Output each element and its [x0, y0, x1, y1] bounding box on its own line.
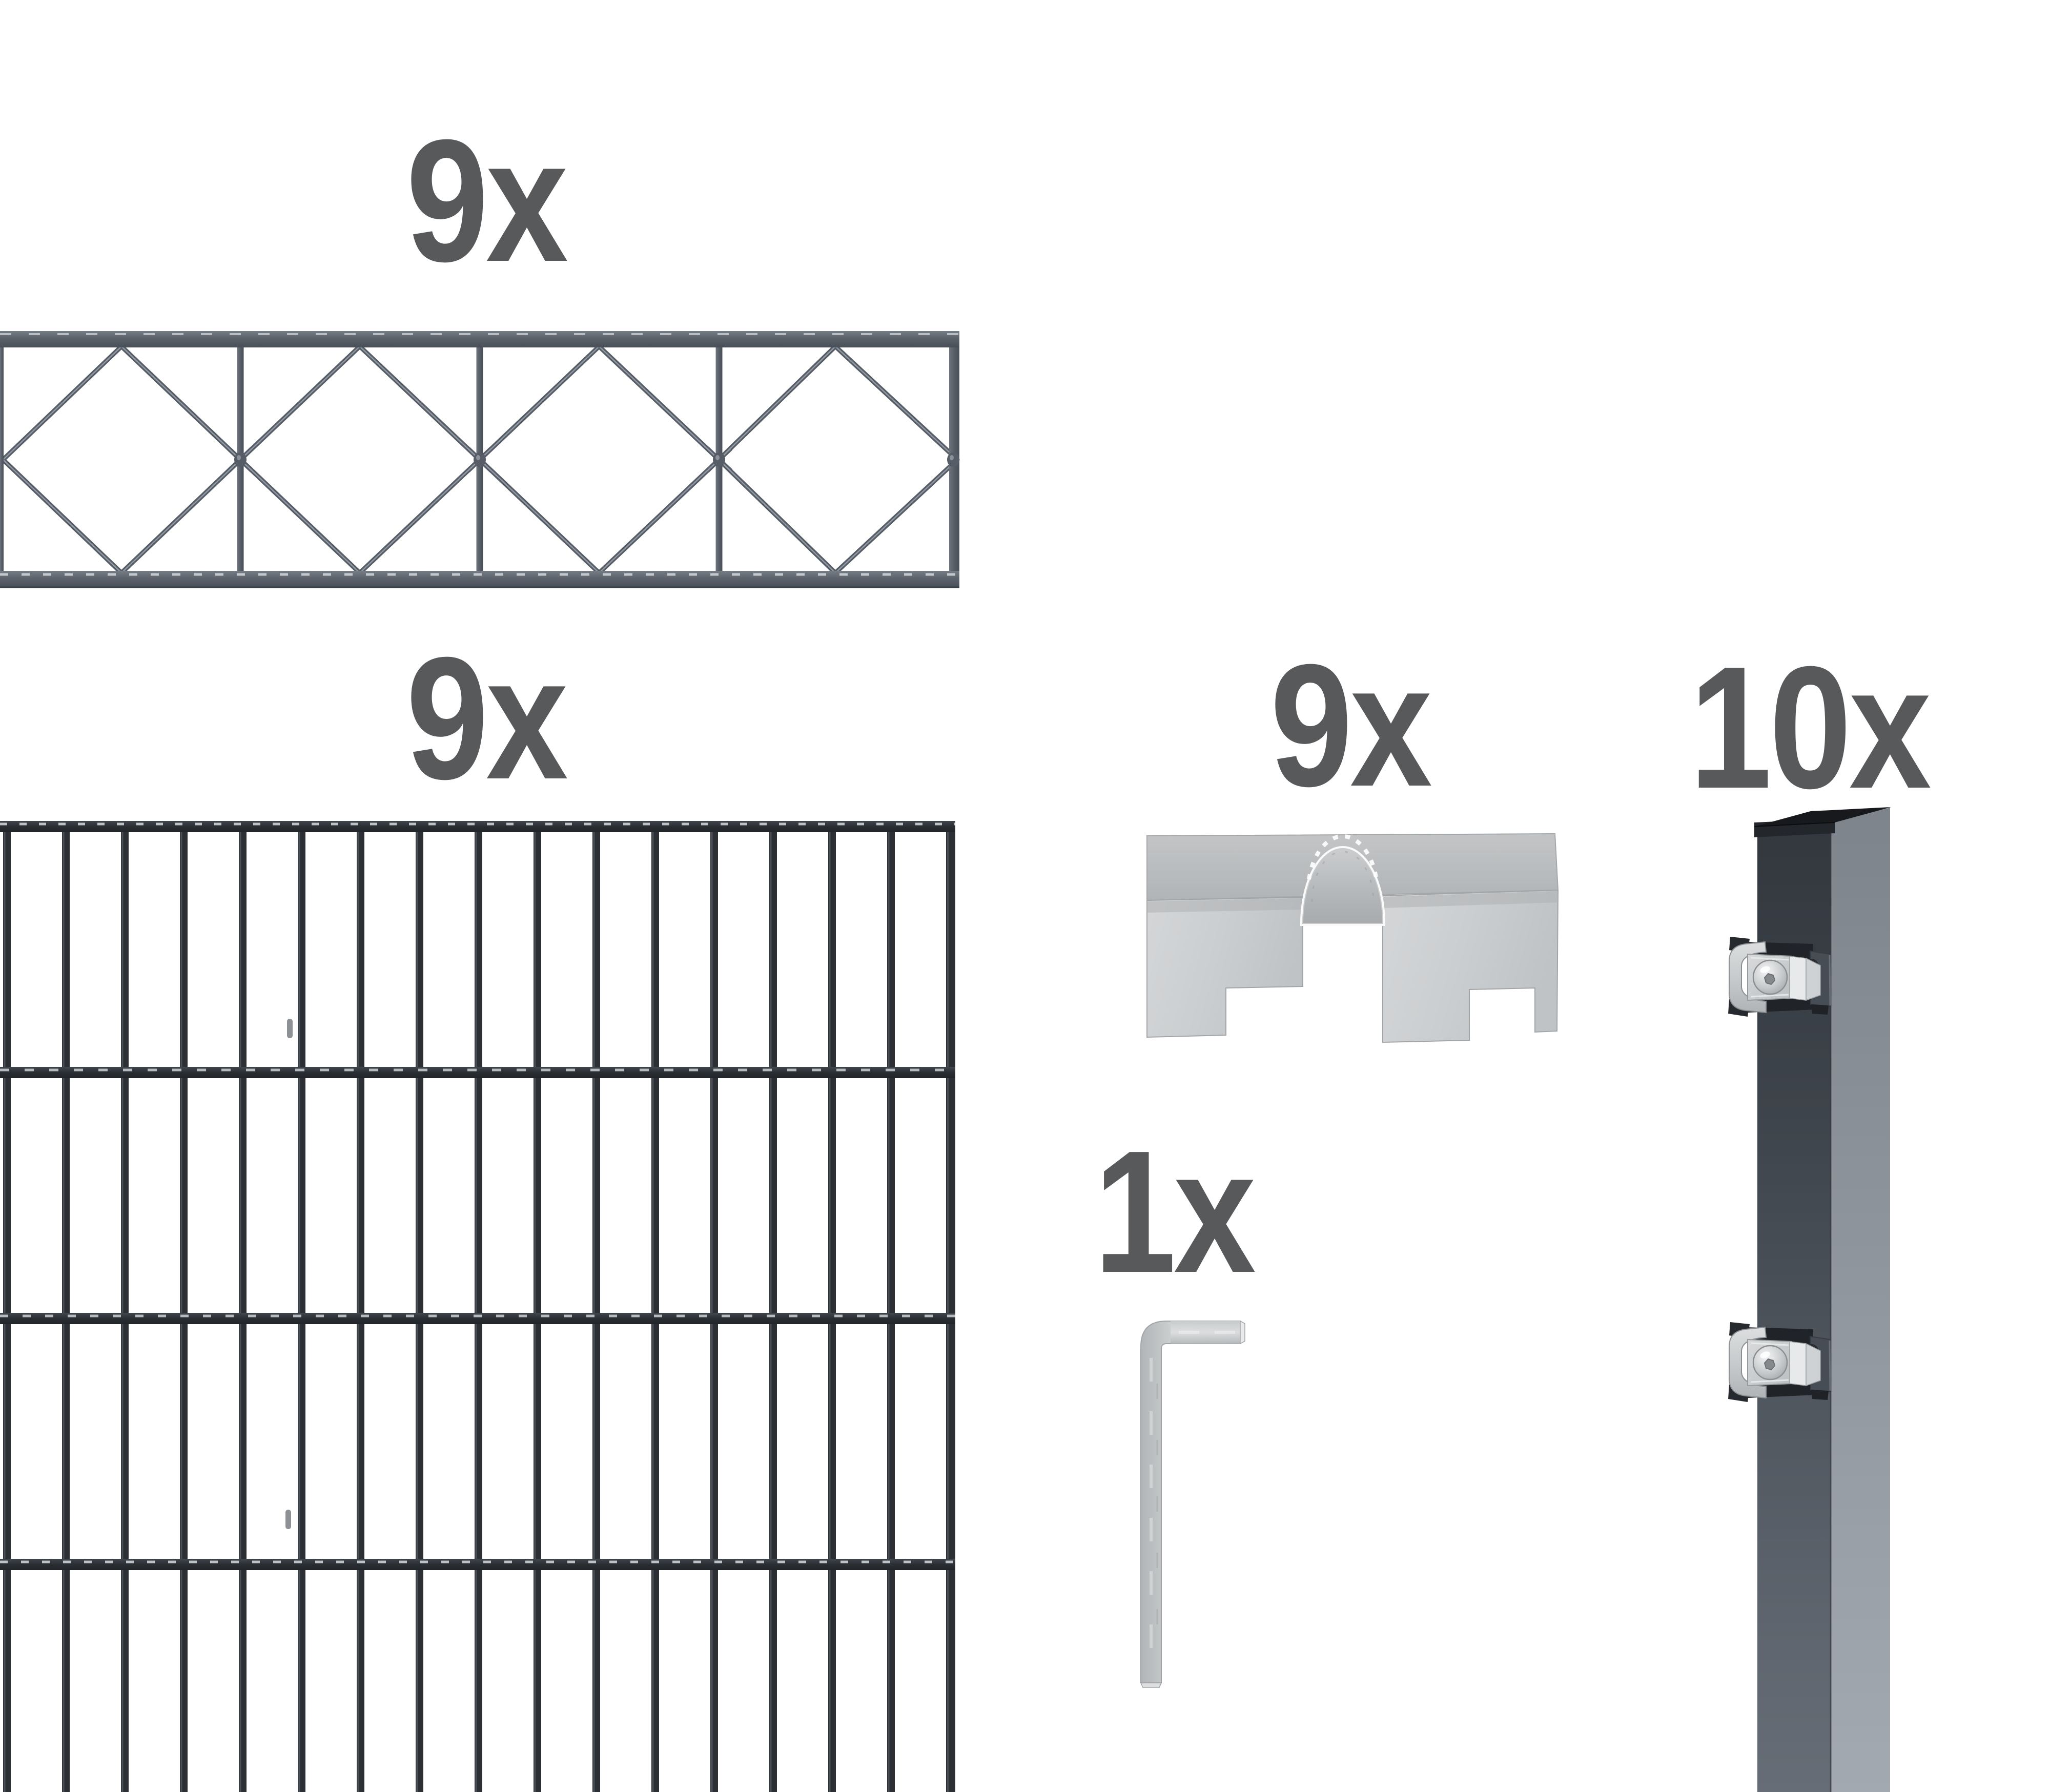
fence-kit-product-image: 9x 9x 9x 1x 10x	[0, 0, 2050, 1792]
decorative-topper-panel	[0, 331, 959, 588]
fence-post	[1728, 807, 1891, 1792]
connector-bracket	[1147, 834, 1558, 1042]
mesh-vertical-bars	[3, 821, 954, 1792]
connector-left-foot	[1147, 897, 1303, 1037]
product-illustration-canvas	[0, 0, 2050, 1792]
allen-key	[1141, 1321, 1245, 1687]
mesh-panel	[0, 821, 955, 1792]
post-side-face	[1831, 808, 1890, 1792]
connector-right-foot	[1383, 890, 1558, 1042]
